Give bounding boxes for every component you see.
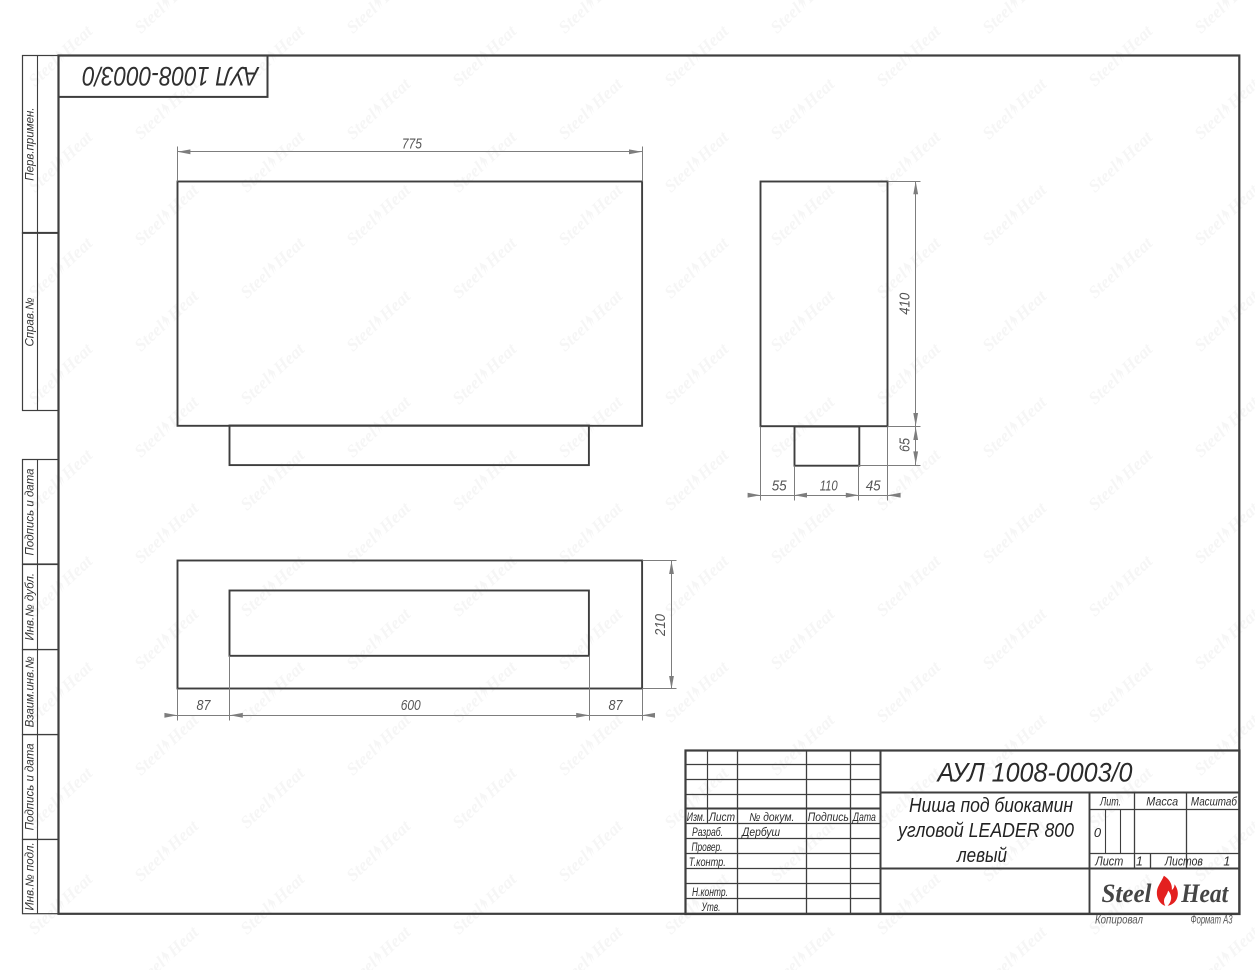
svg-text:Heat: Heat <box>1180 879 1229 908</box>
svg-text:Разраб.: Разраб. <box>692 827 723 839</box>
svg-text:Н.контр.: Н.контр. <box>692 887 728 899</box>
svg-text:Изм.: Изм. <box>687 812 706 824</box>
svg-text:210: 210 <box>652 614 669 637</box>
svg-text:775: 775 <box>402 135 422 152</box>
svg-text:65: 65 <box>897 438 914 452</box>
svg-text:Взаим.инв.№: Взаим.инв.№ <box>25 656 37 728</box>
svg-text:АУЛ 1008-0003/0: АУЛ 1008-0003/0 <box>936 758 1133 788</box>
svg-text:Дата: Дата <box>851 812 876 824</box>
svg-text:№ докум.: № докум. <box>749 812 794 824</box>
svg-text:Подпись и дата: Подпись и дата <box>25 468 37 555</box>
svg-text:600: 600 <box>401 697 421 714</box>
svg-text:Подпись и дата: Подпись и дата <box>25 743 37 830</box>
svg-text:АУЛ 1008-0003/0: АУЛ 1008-0003/0 <box>82 61 260 91</box>
svg-text:Листов: Листов <box>1164 854 1203 868</box>
svg-text:Формат А3: Формат А3 <box>1191 915 1233 927</box>
svg-text:Дербуш: Дербуш <box>740 827 780 839</box>
svg-text:Лист: Лист <box>1094 854 1123 868</box>
svg-text:Лист: Лист <box>708 812 735 824</box>
svg-text:87: 87 <box>197 697 211 714</box>
svg-text:Перв.примен.: Перв.примен. <box>25 107 37 180</box>
svg-text:Инв.№ дубл.: Инв.№ дубл. <box>25 573 37 641</box>
svg-text:Инв.№ подл.: Инв.№ подл. <box>25 842 37 910</box>
svg-text:Копировал: Копировал <box>1095 915 1143 927</box>
svg-text:55: 55 <box>772 478 787 495</box>
svg-text:410: 410 <box>897 292 914 314</box>
svg-text:110: 110 <box>820 478 838 495</box>
svg-text:Т.контр.: Т.контр. <box>689 857 726 869</box>
svg-text:0: 0 <box>1094 825 1102 840</box>
svg-text:Утв.: Утв. <box>701 902 721 914</box>
svg-text:Справ.№: Справ.№ <box>25 297 37 347</box>
svg-text:1: 1 <box>1136 854 1143 868</box>
svg-text:Лит.: Лит. <box>1099 797 1121 809</box>
svg-text:левый: левый <box>956 845 1007 867</box>
svg-text:Провер.: Провер. <box>692 842 723 854</box>
svg-text:Steel: Steel <box>1102 879 1153 908</box>
svg-text:1: 1 <box>1223 854 1230 868</box>
svg-text:угловой LEADER 800: угловой LEADER 800 <box>896 820 1074 842</box>
svg-text:Масштаб: Масштаб <box>1191 797 1237 809</box>
svg-text:Масса: Масса <box>1146 797 1178 809</box>
svg-text:Ниша под биокамин: Ниша под биокамин <box>909 795 1073 817</box>
svg-text:Подпись: Подпись <box>808 812 849 824</box>
svg-text:87: 87 <box>609 697 623 714</box>
svg-text:45: 45 <box>866 478 881 495</box>
